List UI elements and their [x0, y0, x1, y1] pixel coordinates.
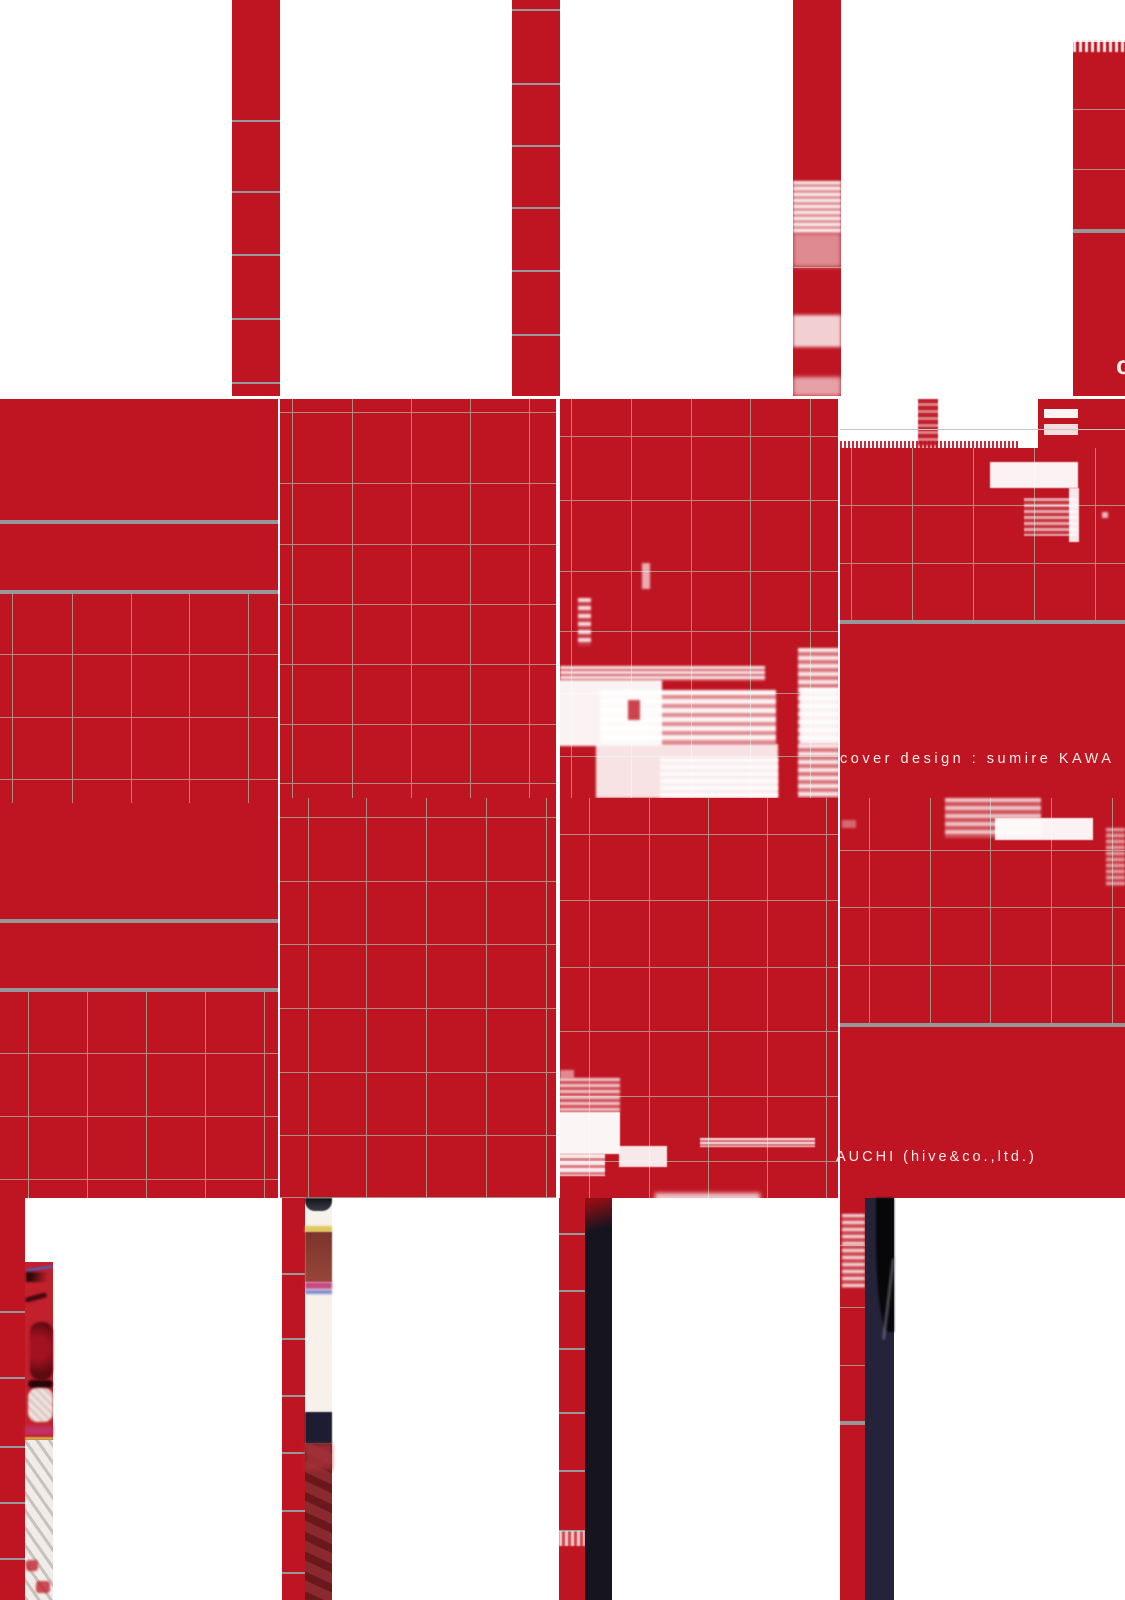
- row3-tile-1-grid-vline: [87, 992, 88, 1198]
- row3-tile-2-grid-vline: [366, 798, 367, 1198]
- row4-red-col-d-lines-hline: [840, 1365, 865, 1366]
- glitch-t4-halftone: [1024, 498, 1078, 536]
- row3-tile-3-grid-hline: [560, 900, 838, 901]
- row2-tile-2-grid-vline: [470, 399, 471, 798]
- glitch-r3t3-streak: [700, 1138, 815, 1147]
- row4-red-col-a-lines-hline: [0, 1377, 25, 1379]
- row2-tile-2-grid-vline: [411, 399, 412, 798]
- glitch-r3t3-halftone: [559, 1078, 620, 1112]
- glitch-t4-slab: [990, 462, 1078, 488]
- row2-tile-4-grid-hline: [840, 505, 1125, 506]
- row2-tile-4-thick: [840, 620, 1125, 624]
- row2-tile-2-grid-hline: [280, 664, 556, 665]
- row3-tile-2-grid-vline: [486, 798, 487, 1198]
- row2-tile-2-grid-hline: [280, 783, 556, 784]
- swirl-magenta: [25, 1426, 53, 1435]
- row2-tile-1-thick-a: [0, 520, 278, 524]
- glitch-t3-bottom2: [660, 758, 778, 798]
- row3-tile-1-stubs: [0, 798, 278, 803]
- row3-tile-1-grid-vline: [205, 992, 206, 1198]
- row3-tile-1-stubs-vline: [248, 798, 249, 803]
- row3-tile-1-stubs-vline: [12, 798, 13, 803]
- glitch-r3t4-bright: [995, 818, 1093, 840]
- pb-navy-band: [305, 1412, 332, 1444]
- swirl-eye-rim: [28, 1380, 53, 1388]
- glitch-r3t4-rightnoise: [1106, 828, 1125, 886]
- row2-tile-4-grid: [840, 448, 1125, 622]
- glitch-col-d: [842, 1214, 865, 1288]
- row1-block-d-thick: [1073, 229, 1125, 233]
- row2-tile-2-grid: [280, 399, 556, 798]
- glitch-strip-c-1: [793, 181, 841, 233]
- swirl-dark-arc-1: [26, 1272, 53, 1282]
- row1-strip-c-lines-hline: [793, 267, 841, 268]
- clipped-letter-fragment: c: [1116, 350, 1125, 381]
- row3-tile-2-grid-hline: [280, 1008, 556, 1009]
- row2-tile-1-grid-hline: [0, 654, 278, 655]
- row1-strip-b-lines-hline: [512, 83, 560, 85]
- glitch-t3-streak: [560, 666, 765, 681]
- row2-tile-4-grid-hline: [840, 563, 1125, 564]
- row3-tile-2-grid-hline: [280, 881, 556, 882]
- row3-tile-3-grid-hline: [560, 1031, 838, 1032]
- row2-tile-2-grid-hline: [280, 544, 556, 545]
- t4-band-slot-1: [1044, 409, 1078, 418]
- row3-tile-1-grid-vline: [264, 992, 265, 1198]
- row3-tile-2-grid: [280, 798, 556, 1198]
- row1-strip-a-lines-hline: [232, 191, 280, 193]
- row2-tile-1-grid-hline: [0, 717, 278, 718]
- row2-tile-2-grid-vline: [529, 399, 530, 798]
- row2-tile-3-grid-hline: [560, 631, 838, 632]
- row3-tile-3-grid-vline: [649, 798, 650, 1198]
- photo-strip-a-stripes: [25, 1440, 53, 1600]
- row3-tile-2-grid-vline: [546, 798, 547, 1198]
- row2-tile-4-grid-vline: [1095, 448, 1096, 622]
- row3-tile-2-grid-vline: [308, 798, 309, 1198]
- row3-tile-2-grid-hline: [280, 1072, 556, 1073]
- row3-tile-4-grid-hline: [840, 850, 1125, 851]
- row4-red-col-a-lines-hline: [0, 1446, 25, 1448]
- cover-design-credit: cover design : sumire KAWA: [840, 751, 1114, 767]
- row3-tile-4-grid-hline: [840, 965, 1125, 966]
- row1-strip-a-lines: [232, 0, 280, 396]
- glitch-r3t3-block: [559, 1112, 620, 1154]
- row2-tile-1-grid: [0, 594, 278, 798]
- t4-grayline-onwhite: [840, 429, 1125, 430]
- swirl-core: [30, 1322, 53, 1380]
- row4-red-col-b-lines-hline: [282, 1572, 305, 1574]
- company-credit: AUCHI (hive&co.,ltd.): [836, 1149, 1037, 1165]
- row3-tile-4-grid-vline: [930, 798, 931, 1025]
- glitch-r3t3-block2: [559, 1154, 605, 1176]
- row2-tile-4-grid-vline: [973, 448, 974, 622]
- glitch-strip-c-2: [793, 233, 841, 267]
- row3-tile-4-grid-hline: [840, 907, 1125, 908]
- row2-tile-2-grid-hline: [280, 483, 556, 484]
- row3-tile-3-grid-hline: [560, 967, 838, 968]
- row2-tile-1-grid-vline: [72, 594, 73, 798]
- row4-red-col-b-lines-hline: [282, 1338, 305, 1340]
- row1-strip-b-lines-hline: [512, 9, 560, 11]
- glitch-r3t4-reddash: [842, 820, 856, 828]
- row2-tile-2-grid-vline: [292, 399, 293, 798]
- row2-tile-1-grid-hline: [0, 779, 278, 780]
- row3-tile-2-grid-hline: [280, 817, 556, 818]
- pb-band: [305, 1232, 332, 1282]
- photo-strip-a-top: [25, 1198, 53, 1262]
- row2-tile-4-grid-vline: [851, 448, 852, 622]
- row1-strip-b-lines-hline: [512, 270, 560, 272]
- glitch-t3-rightcol2: [800, 688, 839, 744]
- glitch-cover-artwork: cover design : sumire KAWA AUCHI (hive&c…: [0, 0, 1125, 1600]
- row2-tile-2-grid-vline: [352, 399, 353, 798]
- row3-tile-1-stubs-vline: [131, 798, 132, 803]
- row2-tile-2-grid-hline: [280, 604, 556, 605]
- row4-red-col-b-lines-hline: [282, 1273, 305, 1275]
- row2-tile-3-grid-hline: [560, 436, 838, 437]
- row4-red-col-d-thick: [840, 1421, 865, 1425]
- row2-tile-1-grid-vline: [131, 594, 132, 798]
- glitch-col-c: [559, 1531, 585, 1546]
- row4-red-col-a-lines-hline: [0, 1558, 25, 1560]
- row3-tile-1-stubs-vline: [189, 798, 190, 803]
- row3-tile-2-grid-hline: [280, 1135, 556, 1136]
- row2-tile-1-grid-vline: [189, 594, 190, 798]
- row4-dark-col-a: [585, 1198, 612, 1600]
- row4-red-col-a-lines-hline: [0, 1311, 25, 1313]
- row2-tile-2-grid-hline: [280, 412, 556, 413]
- glitch-r3t3-bar: [619, 1146, 667, 1167]
- row4-red-col-a-lines: [0, 1198, 25, 1600]
- glitch-t3-redspeck: [628, 700, 640, 720]
- row1-strip-a-lines-hline: [232, 318, 280, 320]
- row3-tile-1-grid-vline: [28, 992, 29, 1198]
- row1-strip-a-lines-hline: [232, 254, 280, 256]
- row4-red-col-b-lines: [282, 1198, 305, 1600]
- row3-tile-4-grid-vline: [869, 798, 870, 1025]
- row4-red-col-c-lines-hline: [559, 1233, 585, 1235]
- row4-red-col-a-lines-hline: [0, 1502, 25, 1504]
- photo-strip-a-dot-1: [26, 1560, 38, 1571]
- glitch-r3t3-speck: [560, 1070, 574, 1078]
- row3-tile-3-grid-vline: [826, 798, 827, 1198]
- row4-red-col-c-lines-hline: [559, 1412, 585, 1414]
- row3-tile-1-grid-hline: [0, 1179, 278, 1180]
- glitch-strip-c-3: [793, 315, 841, 347]
- glitch-t4-dot: [1102, 512, 1108, 518]
- glitch-t3-mid: [600, 690, 776, 744]
- row2-tile-2-grid-hline: [280, 724, 556, 725]
- row3-tile-1-grid-vline: [146, 992, 147, 1198]
- row1-strip-b-lines-hline: [512, 207, 560, 209]
- pb-fringe-blue: [305, 1290, 332, 1294]
- row1-strip-b-lines-hline: [512, 145, 560, 147]
- row3-tile-1-stubs-vline: [72, 798, 73, 803]
- glitch-strip-c-4: [793, 377, 841, 396]
- dark-col-a-red-fade: [585, 1198, 612, 1242]
- row4-red-col-b-lines-hline: [282, 1395, 305, 1397]
- pb-maroon-light: [305, 1444, 332, 1470]
- row1-strip-a-lines-hline: [232, 120, 280, 122]
- row3-tile-1-grid: [0, 992, 278, 1198]
- row4-red-col-d-lines-hline: [840, 1307, 865, 1308]
- row1-block-d-lines: [1073, 42, 1125, 396]
- row2-tile-3-grid-hline: [560, 500, 838, 501]
- row3-tile-3-grid-hline: [560, 834, 838, 835]
- row3-tile-1-grid-hline: [0, 1116, 278, 1117]
- row4-red-col-c-lines-hline: [559, 1290, 585, 1292]
- row4-red-col-b-lines-hline: [282, 1510, 305, 1512]
- row2-tile-1-grid-vline: [12, 594, 13, 798]
- row3-tile-4-thick: [840, 1023, 1125, 1027]
- row2-tile-4-grid-vline: [912, 448, 913, 622]
- row3-tile-2-grid-hline: [280, 944, 556, 945]
- row3-tile-2-grid-vline: [426, 798, 427, 1198]
- row4-red-col-b-lines-hline: [282, 1452, 305, 1454]
- row1-block-d-lines-hline: [1073, 109, 1125, 110]
- row1-strip-a-lines-hline: [232, 382, 280, 384]
- row4-red-col-c-lines-hline: [559, 1470, 585, 1472]
- row2-tile-3-grid-hline: [560, 571, 838, 572]
- row3-tile-1-grid-hline: [0, 1053, 278, 1054]
- row2-tile-1-grid-vline: [248, 594, 249, 798]
- glitch-t3-dashcol: [578, 598, 591, 646]
- swirl-eye-white: [28, 1388, 53, 1422]
- row1-strip-b-lines-hline: [512, 334, 560, 336]
- boundary-smear: [655, 1193, 760, 1202]
- row1-block-d-lines-hline: [1073, 169, 1125, 170]
- glitch-t3-speck: [642, 563, 650, 589]
- photo-strip-a-dot-2: [36, 1581, 50, 1593]
- row4-red-col-c-lines-hline: [559, 1348, 585, 1350]
- row1-strip-b-lines: [512, 0, 560, 396]
- row3-tile-1-thick-a: [0, 919, 278, 923]
- pb-fringe-magenta: [305, 1282, 332, 1289]
